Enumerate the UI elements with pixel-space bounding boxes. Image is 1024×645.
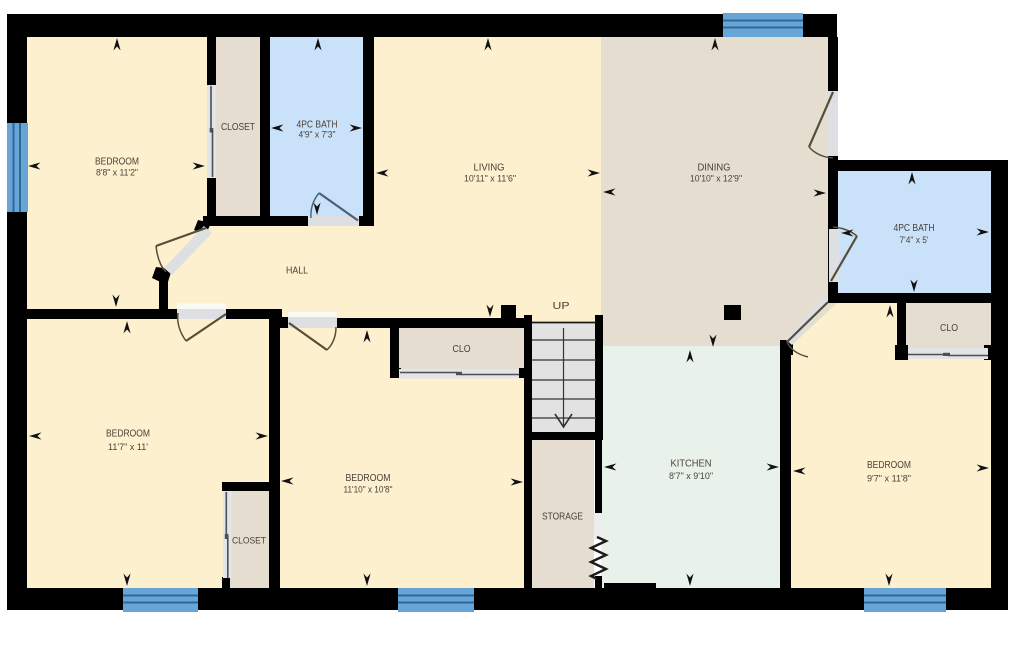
svg-text:STORAGE: STORAGE	[542, 511, 583, 523]
svg-text:11'7" x 11': 11'7" x 11'	[108, 442, 148, 453]
svg-text:BEDROOM: BEDROOM	[95, 156, 139, 168]
svg-text:BEDROOM: BEDROOM	[346, 472, 391, 484]
svg-text:CLO: CLO	[453, 343, 471, 355]
svg-text:9'7" x 11'8": 9'7" x 11'8"	[867, 474, 911, 485]
svg-text:UP: UP	[553, 300, 570, 312]
svg-text:11'10" x 10'8": 11'10" x 10'8"	[344, 485, 393, 496]
svg-text:KITCHEN: KITCHEN	[671, 458, 712, 470]
svg-text:CLOSET: CLOSET	[221, 121, 255, 133]
svg-text:4'9" x 7'3": 4'9" x 7'3"	[299, 130, 336, 141]
svg-text:CLO: CLO	[940, 322, 958, 334]
svg-text:DINING: DINING	[698, 162, 731, 174]
svg-text:10'10" x 12'9": 10'10" x 12'9"	[690, 174, 742, 185]
svg-text:BEDROOM: BEDROOM	[106, 428, 150, 440]
svg-text:8'8" x 11'2": 8'8" x 11'2"	[96, 168, 138, 179]
svg-text:HALL: HALL	[286, 265, 308, 277]
svg-text:4PC BATH: 4PC BATH	[894, 222, 935, 234]
svg-text:10'11" x 11'6": 10'11" x 11'6"	[464, 174, 516, 185]
svg-text:8'7" x 9'10": 8'7" x 9'10"	[669, 471, 713, 482]
svg-text:CLOSET: CLOSET	[232, 536, 266, 547]
svg-text:BEDROOM: BEDROOM	[867, 459, 911, 471]
svg-text:7'4" x 5': 7'4" x 5'	[900, 235, 929, 246]
svg-text:LIVING: LIVING	[474, 162, 505, 174]
